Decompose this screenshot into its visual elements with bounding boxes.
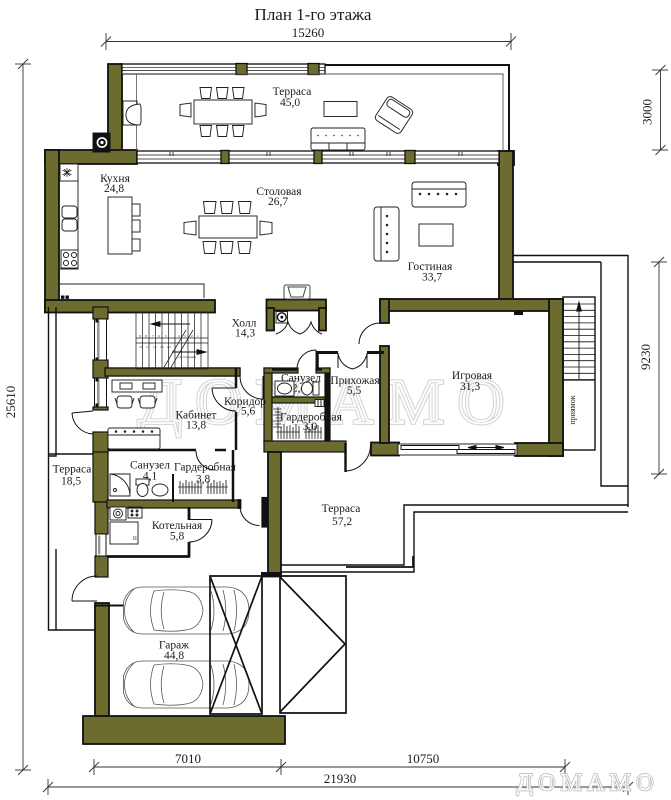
svg-text:10 ступеней: 10 ступеней xyxy=(178,355,196,359)
svg-text:11: 11 xyxy=(146,345,150,349)
svg-text:6: 6 xyxy=(158,334,160,338)
svg-text:Гардеробная: Гардеробная xyxy=(174,462,237,474)
svg-text:21930: 21930 xyxy=(324,771,357,786)
svg-text:п: п xyxy=(133,534,137,542)
svg-text:9230: 9230 xyxy=(638,344,653,370)
svg-text:ДОМАМО: ДОМАМО xyxy=(517,770,659,795)
svg-text:14,3: 14,3 xyxy=(235,328,255,340)
svg-text:45,0: 45,0 xyxy=(280,97,300,109)
svg-text:13: 13 xyxy=(160,345,164,349)
svg-text:7: 7 xyxy=(152,334,154,338)
svg-text:5,6: 5,6 xyxy=(241,406,256,418)
svg-text:14: 14 xyxy=(167,345,171,349)
svg-text:31,3: 31,3 xyxy=(460,381,480,393)
svg-text:3000: 3000 xyxy=(640,99,655,125)
svg-text:5,8: 5,8 xyxy=(170,531,185,543)
svg-text:Терраса: Терраса xyxy=(53,464,92,476)
svg-text:26,7: 26,7 xyxy=(268,196,288,208)
svg-text:57,2: 57,2 xyxy=(332,516,352,528)
svg-text:18,5: 18,5 xyxy=(61,476,81,488)
svg-text:15260: 15260 xyxy=(292,25,325,40)
svg-text:приямок: приямок xyxy=(568,395,577,424)
svg-text:1: 1 xyxy=(197,334,199,338)
svg-text:5,5: 5,5 xyxy=(347,385,362,397)
svg-text:7010: 7010 xyxy=(175,751,201,766)
svg-text:33,7: 33,7 xyxy=(422,272,442,284)
svg-text:12: 12 xyxy=(153,345,157,349)
svg-text:44,8: 44,8 xyxy=(164,650,184,662)
svg-text:5: 5 xyxy=(165,334,167,338)
svg-text:4: 4 xyxy=(178,334,180,338)
svg-text:10750: 10750 xyxy=(407,751,440,766)
svg-text:8: 8 xyxy=(145,334,147,338)
svg-text:3: 3 xyxy=(184,334,186,338)
svg-text:25610: 25610 xyxy=(3,386,18,419)
svg-text:13,8: 13,8 xyxy=(186,420,206,432)
svg-text:Терраса: Терраса xyxy=(322,503,361,515)
svg-text:10: 10 xyxy=(139,345,143,349)
svg-text:24,8: 24,8 xyxy=(104,183,124,195)
svg-text:9: 9 xyxy=(139,334,141,338)
svg-text:План 1-го этажа: План 1-го этажа xyxy=(255,5,372,24)
svg-text:2: 2 xyxy=(191,334,193,338)
